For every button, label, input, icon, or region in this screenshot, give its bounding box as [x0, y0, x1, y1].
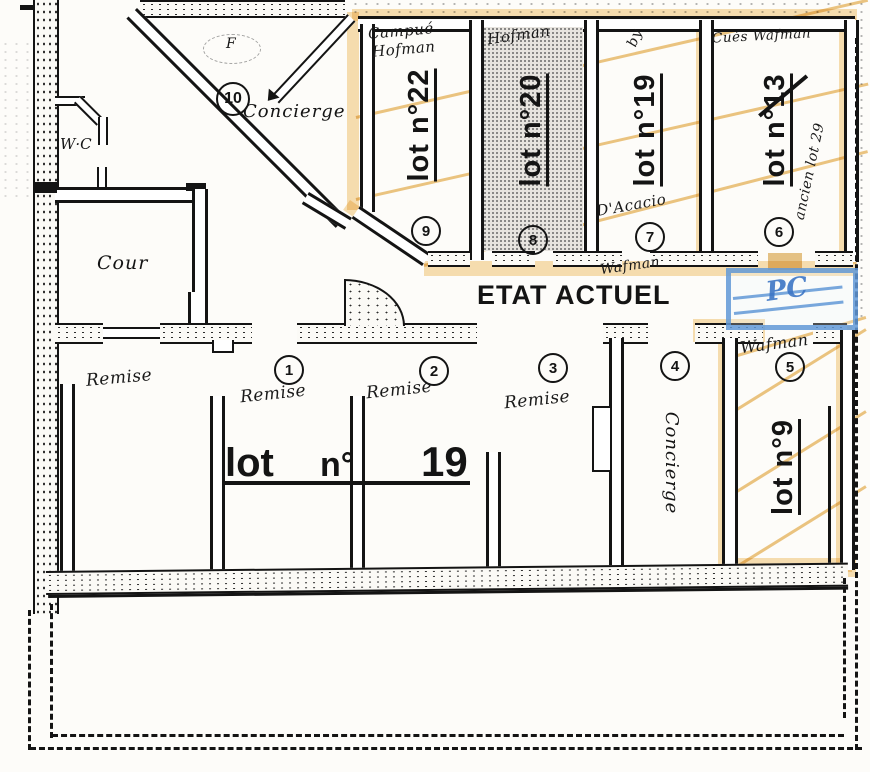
lot22-text: lot n°22: [403, 68, 436, 181]
room-label-cour: Cour: [97, 252, 148, 274]
lot9-label: lot n°9: [765, 382, 801, 552]
wall-wc-stub: [97, 167, 107, 189]
note-remise-2: Remise: [239, 381, 307, 408]
wall-lot9-right: [840, 330, 855, 570]
biglot-no: n°: [320, 446, 354, 485]
lot19-cell-label: lot n°19: [627, 45, 663, 215]
circle-9: 9: [411, 216, 441, 246]
floor-plan: PC ETAT ACTUEL W·C Cour Concierge F Conc…: [0, 0, 870, 772]
scan-noise-left: [0, 40, 30, 200]
circle-3-num: 3: [549, 360, 557, 377]
wall-mid-notch: [212, 340, 234, 353]
lot9-text: lot n°9: [767, 419, 800, 515]
biglot-word: lot: [225, 441, 274, 486]
wall-cells-bottom-e: [815, 251, 853, 267]
tick-top-left: [20, 5, 34, 10]
lot22-label: lot n°22: [401, 40, 437, 210]
lot20-label: lot n°20: [513, 45, 549, 215]
circle-3: 3: [538, 353, 568, 383]
wall-bottom-outer-group: [46, 557, 848, 599]
circle-7: 7: [635, 222, 665, 252]
circle-8: 8: [518, 225, 548, 255]
wall-bottom-4: [486, 452, 501, 574]
boundary-bottom-outer: [30, 747, 862, 750]
room-label-concierge-top: Concierge: [243, 101, 345, 122]
lot20-text: lot n°20: [515, 73, 548, 186]
boundary-bottom-inner: [52, 734, 844, 737]
door-swing-fan: [344, 279, 405, 326]
wall-mid-2: [103, 327, 161, 339]
circle-6: 6: [764, 217, 794, 247]
wall-cell7-left: [584, 20, 599, 258]
wall-mid-1: [55, 323, 103, 344]
circle-9-num: 9: [422, 223, 430, 240]
wall-lot9-left: [722, 338, 738, 576]
wall-corner-block: [33, 182, 57, 193]
boundary-right-outer: [855, 38, 858, 750]
door-f-arc: [203, 34, 261, 64]
circle-6-num: 6: [775, 224, 783, 241]
wall-wc-right: [98, 117, 108, 145]
wall-top-concierge: [140, 0, 345, 18]
lot19-cell-text: lot n°19: [629, 73, 662, 186]
note-remise-3: Remise: [365, 377, 433, 404]
biglot-underline: [224, 481, 470, 485]
circle-4: 4: [660, 351, 690, 381]
room-label-concierge-bottom: Concierge: [659, 398, 685, 528]
wall-left-outer: [33, 0, 59, 614]
circle-10: 10: [216, 82, 250, 116]
note-remise-4: Remise: [503, 387, 571, 414]
wall-bottom-1: [60, 384, 75, 576]
pc-label: PC: [764, 271, 810, 308]
circle-5-num: 5: [786, 359, 794, 376]
biglot-num: 19: [421, 438, 468, 486]
closet-room4: [592, 406, 612, 472]
note-remise-1: Remise: [85, 365, 153, 391]
wall-cell6-left: [699, 20, 714, 260]
wall-wc-bottom: [55, 187, 200, 203]
circle-7-num: 7: [646, 229, 654, 246]
wall-cells-bottom-d: [650, 251, 758, 267]
circle-5: 5: [775, 352, 805, 382]
circle-10-num: 10: [224, 90, 242, 108]
circle-4-num: 4: [671, 358, 679, 375]
boundary-left-outer: [28, 610, 31, 750]
concierge-bottom-text: Concierge: [662, 412, 683, 514]
circle-1-num: 1: [285, 362, 293, 379]
plan-title: ETAT ACTUEL: [477, 280, 670, 311]
door-leaf-concierge: [271, 14, 355, 103]
circle-8-num: 8: [529, 232, 537, 249]
boundary-left-inner: [50, 604, 53, 738]
room-label-wc: W·C: [60, 135, 92, 153]
wall-cell8-left: [469, 20, 484, 260]
wall-lot9-inner-line: [828, 406, 831, 564]
highlight-left-band: [347, 12, 359, 210]
wall-cells-bottom-a: [428, 251, 470, 267]
boundary-right-inner: [843, 578, 846, 718]
wall-bottom-2: [210, 396, 225, 576]
wall-mid-4: [297, 323, 477, 344]
wall-mid-3: [160, 323, 252, 344]
lot13-label: lot n°13: [757, 45, 793, 215]
wall-bottom-3: [350, 396, 365, 576]
